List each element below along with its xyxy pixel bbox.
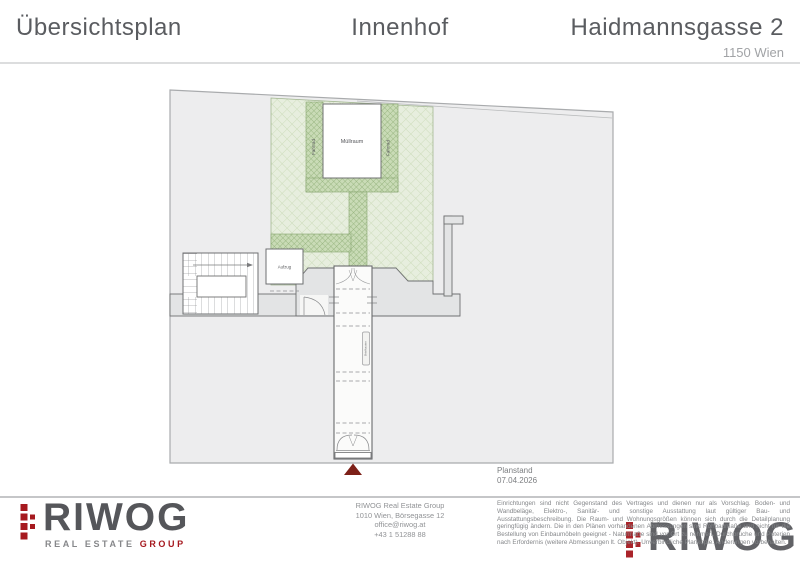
planstand-date: 07.04.2026 — [497, 476, 537, 486]
contact-phone: +43 1 51288 88 — [320, 530, 480, 540]
riwog-wordmark: RIWOG — [43, 501, 189, 535]
plan-document: Übersichtsplan Innenhof Haidmannsgasse 2… — [0, 0, 800, 565]
entrance-passage: Briefkasten — [329, 266, 377, 459]
riwog-squares-icon — [20, 504, 37, 546]
bike-area-right-label: Fahrrad — [386, 140, 391, 157]
contact-email: office@riwog.at — [320, 520, 480, 530]
waste-room-label: Müllraum — [341, 139, 364, 145]
contact-block: RIWOG Real Estate Group 1010 Wien, Börse… — [320, 501, 480, 539]
planstand-label: Planstand — [497, 466, 537, 476]
waste-room: Müllraum — [323, 104, 381, 178]
bike-area-left-label: Fahrrad — [311, 139, 316, 156]
contact-company: RIWOG Real Estate Group — [320, 501, 480, 511]
site-plan: Fahrrad Fahrrad Müllraum — [0, 0, 800, 565]
tagline-gray: REAL ESTATE — [45, 539, 135, 549]
entrance-marker-triangle — [344, 464, 362, 476]
stairwell — [183, 253, 258, 314]
disclaimer-text: Einrichtungen sind nicht Gegenstand des … — [497, 500, 790, 547]
riwog-logo-text: RIWOG REAL ESTATE GROUP — [43, 501, 189, 549]
riwog-logo: RIWOG REAL ESTATE GROUP — [20, 501, 189, 549]
mailbox-label: Briefkasten — [364, 341, 368, 356]
elevator-label: Aufzug — [278, 265, 292, 270]
riwog-tagline: REAL ESTATE GROUP — [45, 539, 189, 549]
mailbox-unit: Briefkasten — [363, 332, 370, 365]
planstand-block: Planstand 07.04.2026 — [497, 466, 537, 486]
tagline-red: GROUP — [140, 539, 186, 549]
contact-address: 1010 Wien, Börsegasse 12 — [320, 511, 480, 521]
door-swing — [300, 295, 328, 315]
